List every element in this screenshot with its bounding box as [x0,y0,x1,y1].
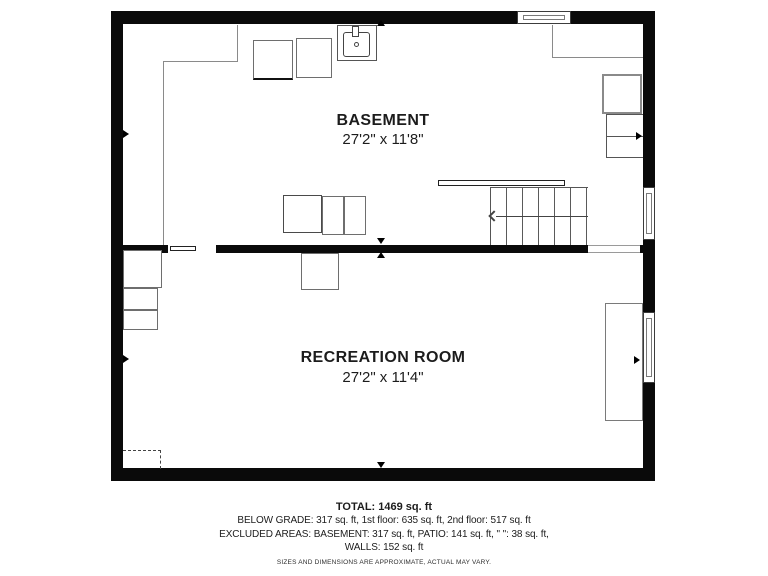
storage-box-3 [344,196,366,235]
exterior-wall-bottom [111,468,655,481]
wall-marker-icon-mid-below [377,252,385,258]
excluded-areas-text: EXCLUDED AREAS: BASEMENT: 317 sq. ft, PA… [0,528,768,542]
appliance-box-1 [253,40,293,80]
partition-line-vertical-a [237,25,238,62]
dashed-area [123,450,161,469]
walls-area-text: WALLS: 152 sq. ft [0,541,768,555]
room-name-basement: BASEMENT [0,112,766,129]
total-area-text: TOTAL: 1469 sq. ft [0,501,768,514]
window-pane [646,193,652,234]
shelf-left-1 [123,250,162,288]
partition-line-horizontal [163,61,238,62]
shelf-left-2 [123,288,158,310]
wall-marker-icon-mid-above [377,238,385,244]
area-summary: TOTAL: 1469 sq. ft BELOW GRADE: 317 sq. … [0,501,768,567]
stair-handrail [438,180,565,186]
window-pane [523,15,565,20]
wall-marker-icon-top [377,20,385,26]
partition-line-vertical-b [163,61,164,245]
counter-line-horizontal [552,57,643,58]
utility-box-right [602,74,642,114]
room-dimensions-recreation: 27'2" x 11'4" [0,370,766,386]
wall-opening [588,245,640,253]
shelf-left-3 [123,310,158,330]
interior-wall-right-stub [640,245,655,253]
room-name-recreation: RECREATION ROOM [0,349,766,366]
door-leaf-icon [170,246,196,251]
room-dimensions-basement: 27'2" x 11'8" [0,132,766,148]
window-pane [646,318,652,377]
floor-plan: BASEMENT 27'2" x 11'8" RECREATION ROOM 2… [0,0,768,576]
cabinet-center [301,253,339,290]
interior-wall-main-segment [216,245,588,253]
wall-marker-icon-bottom [377,462,385,468]
stair-direction-line [496,216,588,217]
window-icon-right-basement [643,187,655,240]
floor-areas-text: BELOW GRADE: 317 sq. ft, 1st floor: 635 … [0,514,768,528]
storage-box-2 [322,196,344,235]
sink-drain [354,42,359,47]
counter-line-vertical [552,25,553,58]
appliance-box-2 [296,38,332,78]
storage-box-1 [283,195,322,233]
window-icon-top [517,11,571,24]
sink-faucet [352,26,359,37]
disclaimer-text: SIZES AND DIMENSIONS ARE APPROXIMATE, AC… [0,558,768,567]
